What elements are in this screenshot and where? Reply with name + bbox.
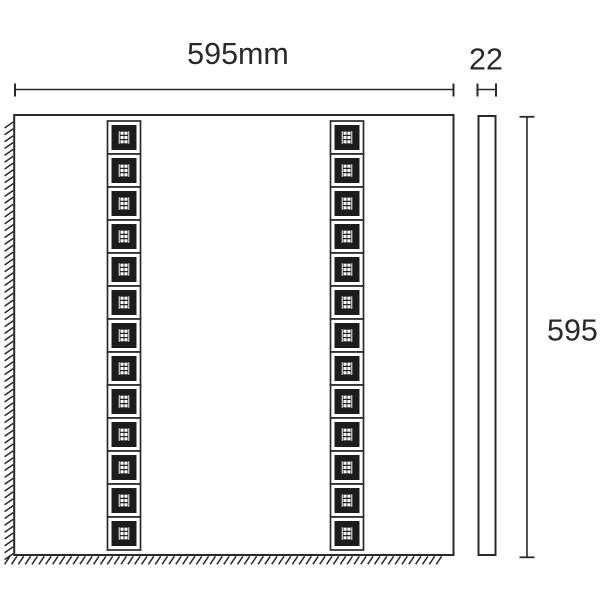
svg-text:595mm: 595mm: [187, 37, 289, 71]
svg-text:595: 595: [547, 314, 598, 348]
svg-text:22: 22: [469, 43, 503, 77]
